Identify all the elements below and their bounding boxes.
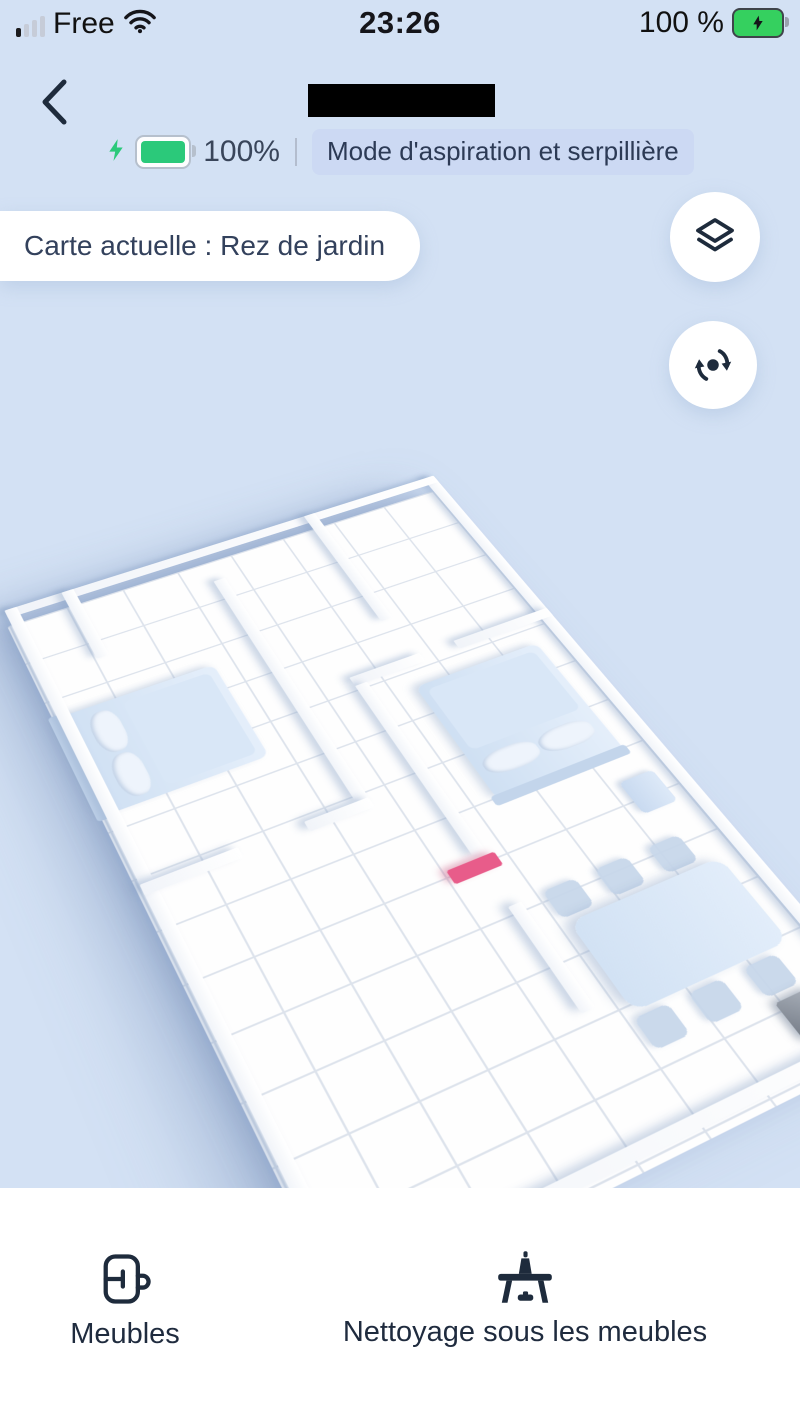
robot-vacuum-map-screen: { "status_bar": { "carrier": "Free", "ti…: [0, 0, 800, 1422]
furniture-label: Meubles: [70, 1319, 180, 1351]
layers-icon: [691, 213, 739, 261]
redacted-device-name: [308, 84, 495, 117]
device-battery-icon: [135, 135, 191, 169]
map-layers-button[interactable]: [670, 192, 760, 282]
current-map-pill[interactable]: Carte actuelle : Rez de jardin: [0, 211, 420, 281]
furniture-icon: [95, 1249, 155, 1309]
cleaning-mode-badge[interactable]: Mode d'aspiration et serpillière: [312, 129, 694, 174]
clean-under-furniture-label: Nettoyage sous les meubles: [343, 1317, 707, 1349]
furniture-button[interactable]: Meubles: [40, 1248, 210, 1352]
map-3d-view[interactable]: [0, 420, 800, 1190]
rotate-icon: [690, 342, 736, 388]
clock: 23:26: [0, 5, 800, 41]
bed-pillow: [84, 707, 134, 756]
battery-charging-icon: [732, 8, 784, 38]
table-vacuum-icon: [492, 1249, 558, 1307]
status-bar: Free 23:26 100 %: [0, 0, 800, 46]
map-rotate-button[interactable]: [669, 321, 757, 409]
charging-bolt-icon: [106, 136, 126, 169]
chevron-left-icon: [37, 78, 71, 126]
clean-under-furniture-button[interactable]: Nettoyage sous les meubles: [295, 1248, 755, 1350]
device-battery-percent: 100%: [203, 135, 280, 169]
back-button[interactable]: [30, 76, 78, 130]
divider: [295, 138, 297, 166]
bed-pillow: [105, 748, 157, 800]
device-status-row: 100% Mode d'aspiration et serpillière: [0, 128, 800, 176]
